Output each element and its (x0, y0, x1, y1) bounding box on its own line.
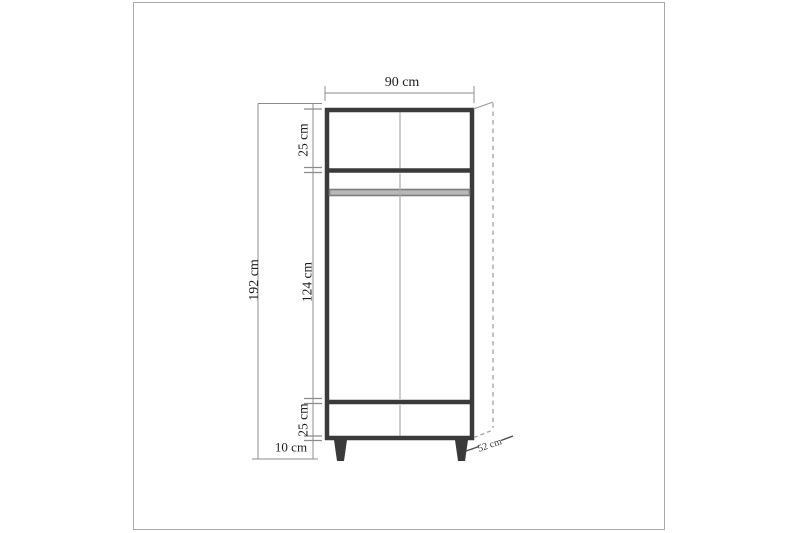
depth-label-leader-right (501, 436, 513, 441)
leg-height-dim-label: 10 cm (275, 441, 307, 454)
width-dim-label: 90 cm (385, 76, 420, 90)
left-leg (334, 440, 347, 461)
total-height-dim-label: 192 cm (248, 259, 262, 301)
top-section-dim-label: 25 cm (296, 123, 310, 156)
drawing-stage: 90 cm 192 cm 25 cm 124 cm 25 cm 10 cm 52… (0, 0, 800, 533)
middle-section-dim-label: 124 cm (300, 262, 314, 302)
bottom-section-dim-label: 25 cm (296, 403, 310, 436)
depth-top-edge (474, 102, 494, 109)
depth-bottom-edge-dashed (474, 430, 493, 438)
